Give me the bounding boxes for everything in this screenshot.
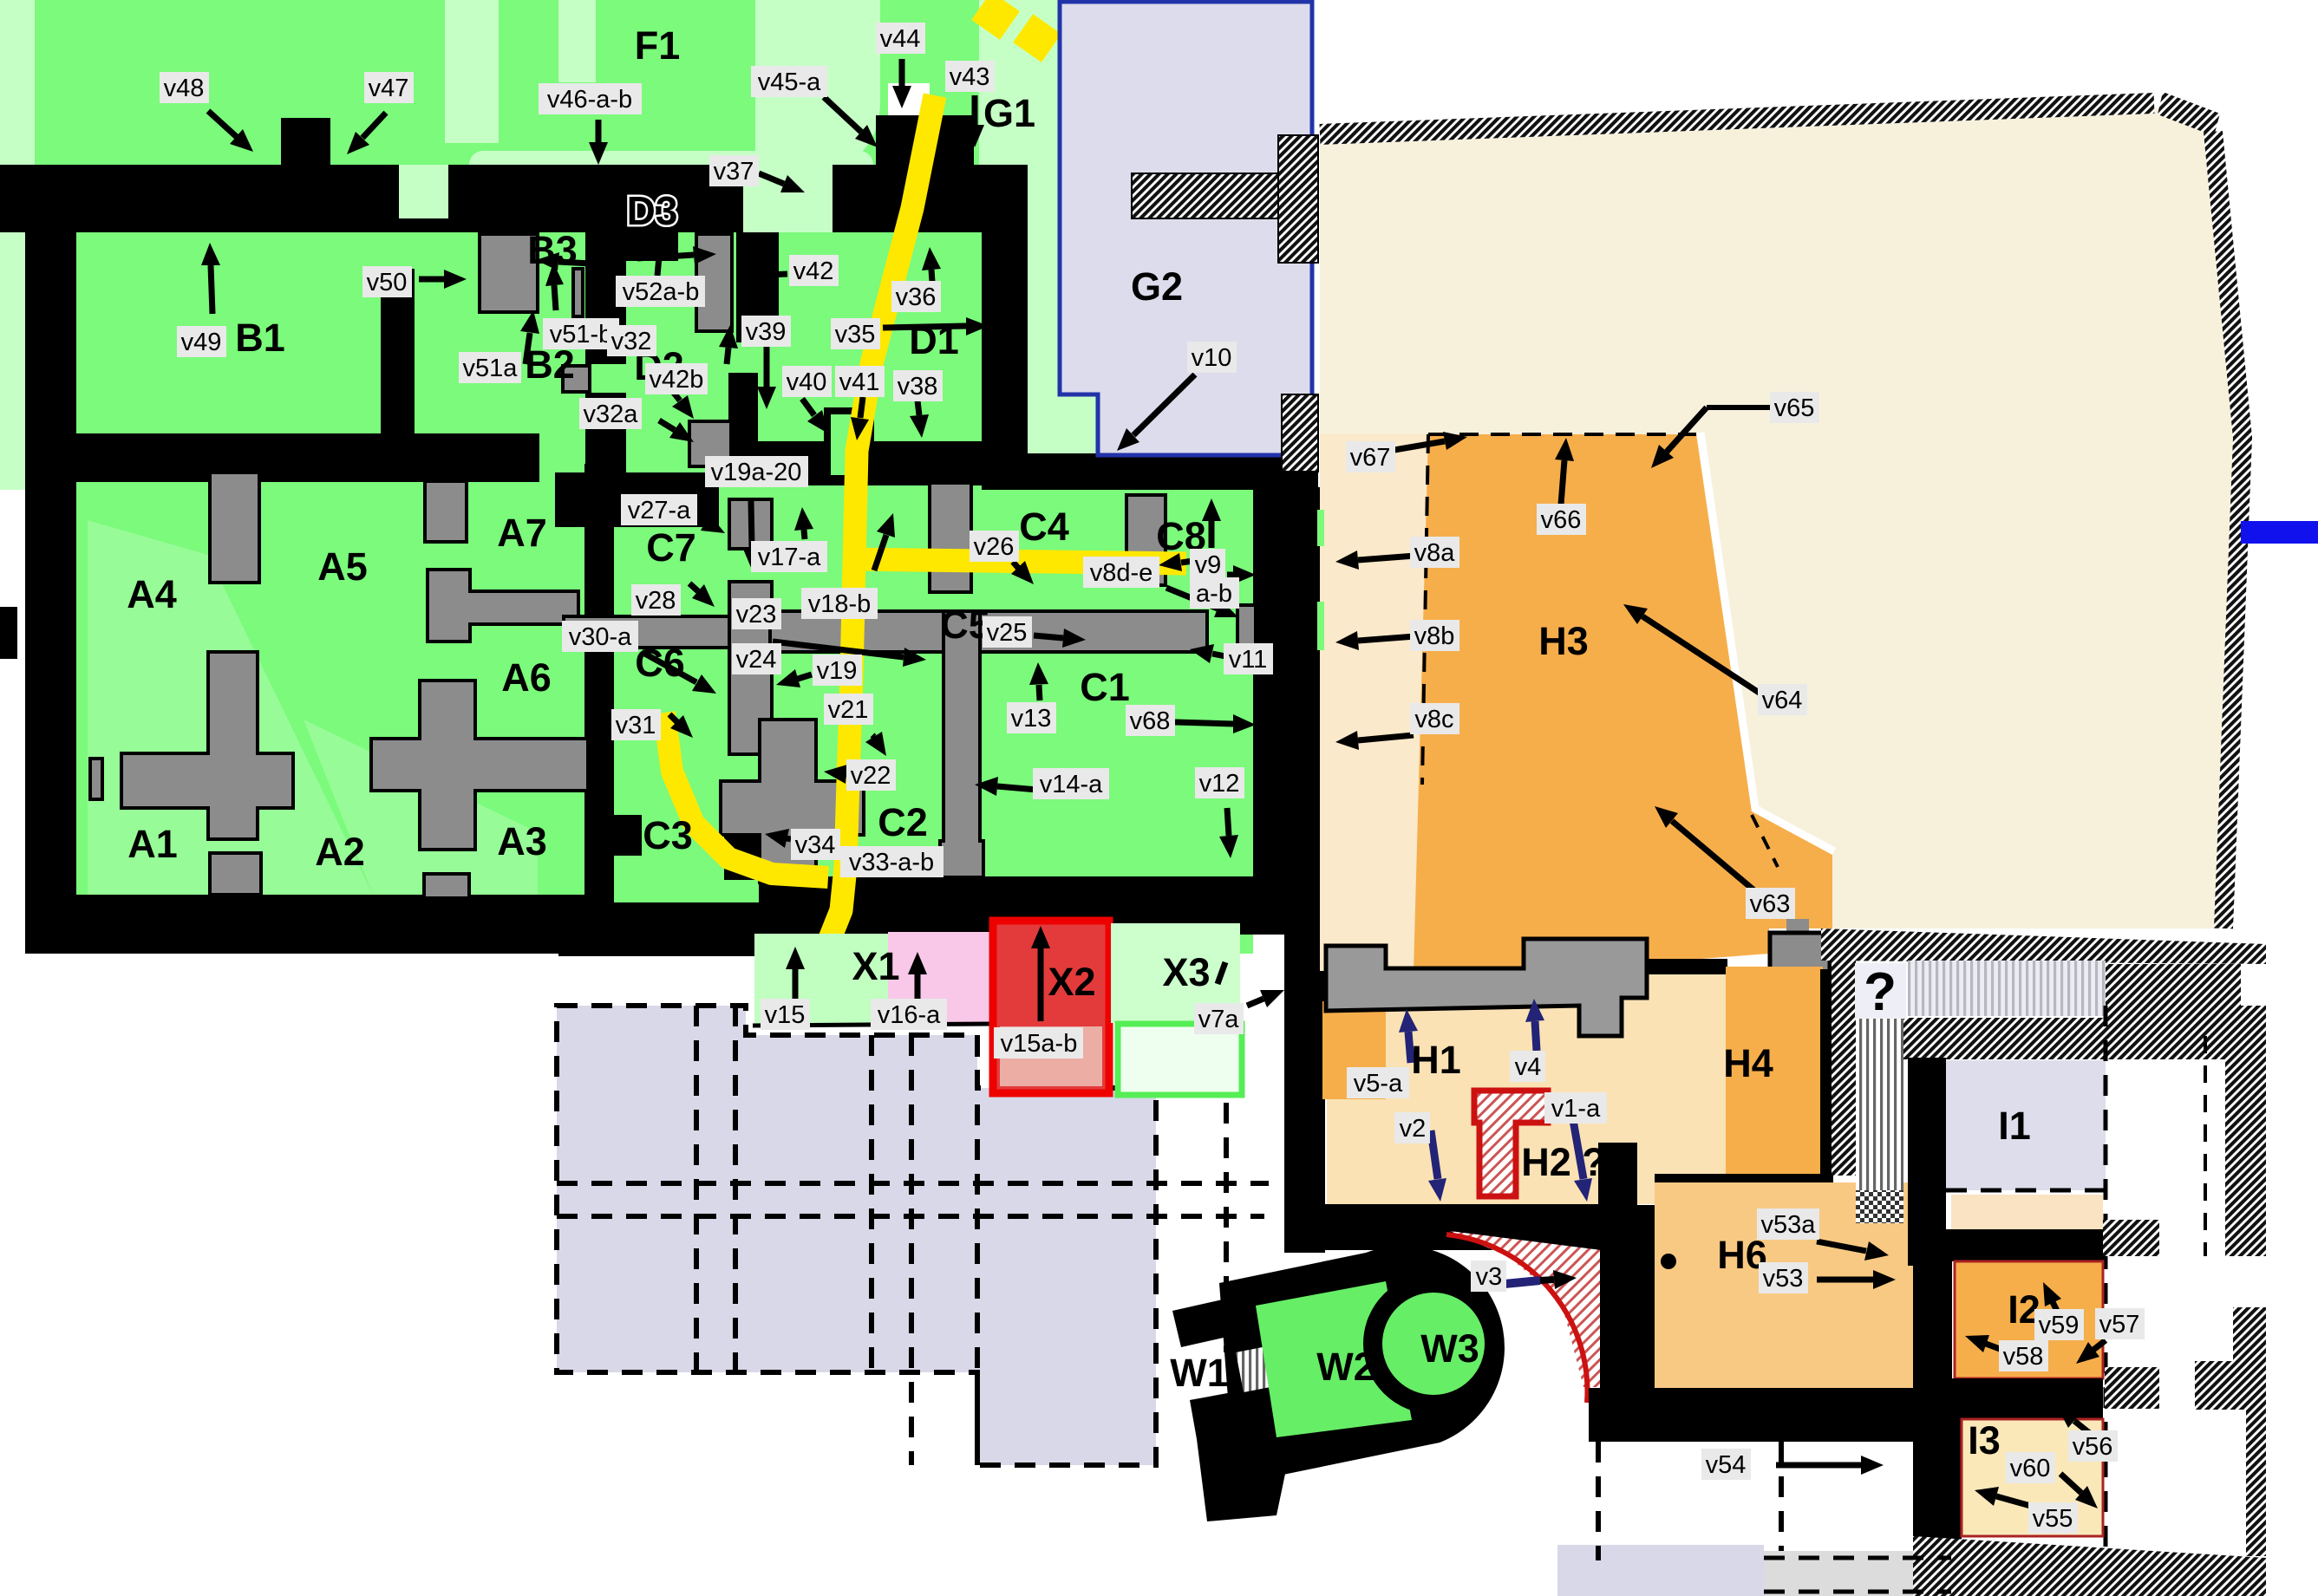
svg-text:A4: A4 bbox=[127, 572, 177, 616]
svg-text:v31: v31 bbox=[616, 712, 656, 739]
svg-text:W2: W2 bbox=[1316, 1345, 1375, 1389]
svg-text:v52a-b: v52a-b bbox=[623, 278, 700, 306]
svg-text:A6: A6 bbox=[501, 655, 552, 700]
svg-text:v8d-e: v8d-e bbox=[1090, 559, 1153, 587]
svg-text:v38: v38 bbox=[898, 373, 938, 401]
svg-text:A2: A2 bbox=[315, 830, 365, 874]
svg-text:v27-a: v27-a bbox=[628, 497, 691, 524]
svg-text:D3: D3 bbox=[627, 188, 678, 233]
svg-text:C2: C2 bbox=[878, 800, 928, 844]
svg-text:v60: v60 bbox=[2010, 1455, 2051, 1482]
svg-text:v5-a: v5-a bbox=[1354, 1070, 1403, 1098]
svg-text:G1: G1 bbox=[983, 91, 1035, 135]
svg-text:a-b: a-b bbox=[1196, 580, 1232, 608]
svg-text:v43: v43 bbox=[950, 63, 990, 91]
svg-text:v16-a: v16-a bbox=[878, 1001, 941, 1029]
svg-text:v34: v34 bbox=[795, 831, 836, 859]
svg-text:v58: v58 bbox=[2003, 1343, 2044, 1371]
svg-text:X3: X3 bbox=[1162, 950, 1210, 994]
svg-text:v39: v39 bbox=[746, 318, 787, 346]
svg-text:v7a: v7a bbox=[1198, 1006, 1240, 1033]
svg-text:v8a: v8a bbox=[1414, 539, 1456, 567]
svg-text:v37: v37 bbox=[714, 158, 754, 186]
svg-text:v56: v56 bbox=[2073, 1433, 2113, 1461]
svg-text:C3: C3 bbox=[643, 813, 693, 857]
svg-text:v57: v57 bbox=[2099, 1311, 2140, 1339]
svg-text:v67: v67 bbox=[1350, 444, 1391, 472]
svg-text:v41: v41 bbox=[839, 368, 880, 396]
svg-text:v54: v54 bbox=[1706, 1451, 1747, 1479]
svg-text:v49: v49 bbox=[181, 329, 222, 356]
svg-text:v4: v4 bbox=[1515, 1053, 1542, 1081]
svg-text:C6: C6 bbox=[635, 641, 685, 685]
svg-text:X1: X1 bbox=[852, 944, 899, 988]
svg-text:v36: v36 bbox=[896, 283, 937, 311]
svg-text:B3: B3 bbox=[527, 228, 578, 272]
svg-text:v48: v48 bbox=[164, 75, 205, 102]
svg-text:v59: v59 bbox=[2039, 1312, 2080, 1339]
svg-text:D1: D1 bbox=[909, 318, 959, 362]
svg-text:G2: G2 bbox=[1131, 264, 1183, 309]
svg-text:I1: I1 bbox=[1998, 1104, 2031, 1148]
svg-text:v3: v3 bbox=[1476, 1263, 1503, 1291]
svg-text:C7: C7 bbox=[646, 525, 696, 570]
svg-text:v50: v50 bbox=[367, 269, 408, 296]
svg-text:v10: v10 bbox=[1192, 344, 1232, 372]
svg-text:v53: v53 bbox=[1763, 1265, 1804, 1293]
svg-text:H1: H1 bbox=[1411, 1038, 1461, 1082]
svg-text:v2: v2 bbox=[1400, 1115, 1427, 1143]
svg-text:W3: W3 bbox=[1420, 1326, 1479, 1371]
svg-text:F1: F1 bbox=[635, 23, 681, 68]
svg-text:A7: A7 bbox=[497, 511, 547, 555]
svg-text:v12: v12 bbox=[1199, 770, 1240, 798]
svg-text:v23: v23 bbox=[736, 601, 777, 629]
svg-text:I3: I3 bbox=[1968, 1418, 2001, 1462]
svg-text:A1: A1 bbox=[127, 822, 178, 866]
svg-text:v65: v65 bbox=[1774, 394, 1815, 422]
svg-text:A5: A5 bbox=[317, 544, 368, 589]
svg-text:v64: v64 bbox=[1762, 687, 1803, 714]
svg-text:v42b: v42b bbox=[650, 366, 704, 394]
svg-text:v26: v26 bbox=[974, 533, 1015, 561]
svg-text:H3: H3 bbox=[1538, 619, 1589, 663]
svg-text:v13: v13 bbox=[1011, 705, 1052, 733]
svg-text:v33-a-b: v33-a-b bbox=[849, 849, 934, 876]
svg-text:v30-a: v30-a bbox=[569, 623, 632, 651]
svg-text:A3: A3 bbox=[497, 819, 547, 863]
svg-text:v15: v15 bbox=[765, 1001, 806, 1029]
svg-text:v9: v9 bbox=[1195, 551, 1222, 579]
svg-text:v51a: v51a bbox=[463, 355, 519, 382]
svg-text:v46-a-b: v46-a-b bbox=[547, 86, 632, 114]
svg-text:v44: v44 bbox=[880, 25, 921, 53]
svg-text:v40: v40 bbox=[787, 368, 827, 396]
svg-text:v42: v42 bbox=[793, 257, 834, 285]
svg-text:v66: v66 bbox=[1541, 506, 1582, 534]
svg-text:v63: v63 bbox=[1750, 890, 1791, 918]
svg-text:B1: B1 bbox=[235, 316, 285, 360]
svg-text:v45-a: v45-a bbox=[758, 68, 821, 96]
svg-text:v47: v47 bbox=[369, 75, 409, 102]
svg-text:v24: v24 bbox=[736, 646, 777, 674]
svg-text:v18-b: v18-b bbox=[808, 590, 872, 618]
svg-text:v25: v25 bbox=[987, 619, 1028, 647]
svg-text:H4: H4 bbox=[1723, 1041, 1773, 1085]
svg-text:v17-a: v17-a bbox=[758, 544, 821, 571]
svg-text:v21: v21 bbox=[828, 696, 869, 724]
svg-text:v14-a: v14-a bbox=[1040, 771, 1103, 798]
svg-text:v35: v35 bbox=[835, 321, 876, 349]
svg-text:v55: v55 bbox=[2033, 1505, 2073, 1533]
svg-text:v8c: v8c bbox=[1414, 706, 1453, 733]
svg-text:X2: X2 bbox=[1048, 960, 1095, 1004]
svg-text:v22: v22 bbox=[851, 762, 891, 790]
svg-text:v11: v11 bbox=[1229, 646, 1268, 674]
svg-text:v19: v19 bbox=[817, 657, 858, 685]
svg-text:v19a-20: v19a-20 bbox=[711, 459, 802, 486]
svg-text:v68: v68 bbox=[1130, 707, 1171, 735]
svg-text:v15a-b: v15a-b bbox=[1001, 1030, 1078, 1058]
svg-text:v1-a: v1-a bbox=[1551, 1095, 1601, 1123]
svg-text:W1: W1 bbox=[1170, 1351, 1229, 1395]
svg-text:C1: C1 bbox=[1080, 665, 1130, 709]
svg-text:v28: v28 bbox=[636, 587, 676, 615]
svg-text:H2 ?: H2 ? bbox=[1521, 1140, 1606, 1184]
svg-text:v53a: v53a bbox=[1761, 1211, 1817, 1239]
svg-text:v32a: v32a bbox=[584, 401, 639, 428]
svg-text:C4: C4 bbox=[1019, 505, 1069, 549]
svg-text:v32: v32 bbox=[611, 328, 652, 355]
svg-text:v8b: v8b bbox=[1414, 622, 1455, 650]
svg-text:?: ? bbox=[1864, 962, 1897, 1022]
svg-text:v51-b: v51-b bbox=[550, 321, 613, 349]
